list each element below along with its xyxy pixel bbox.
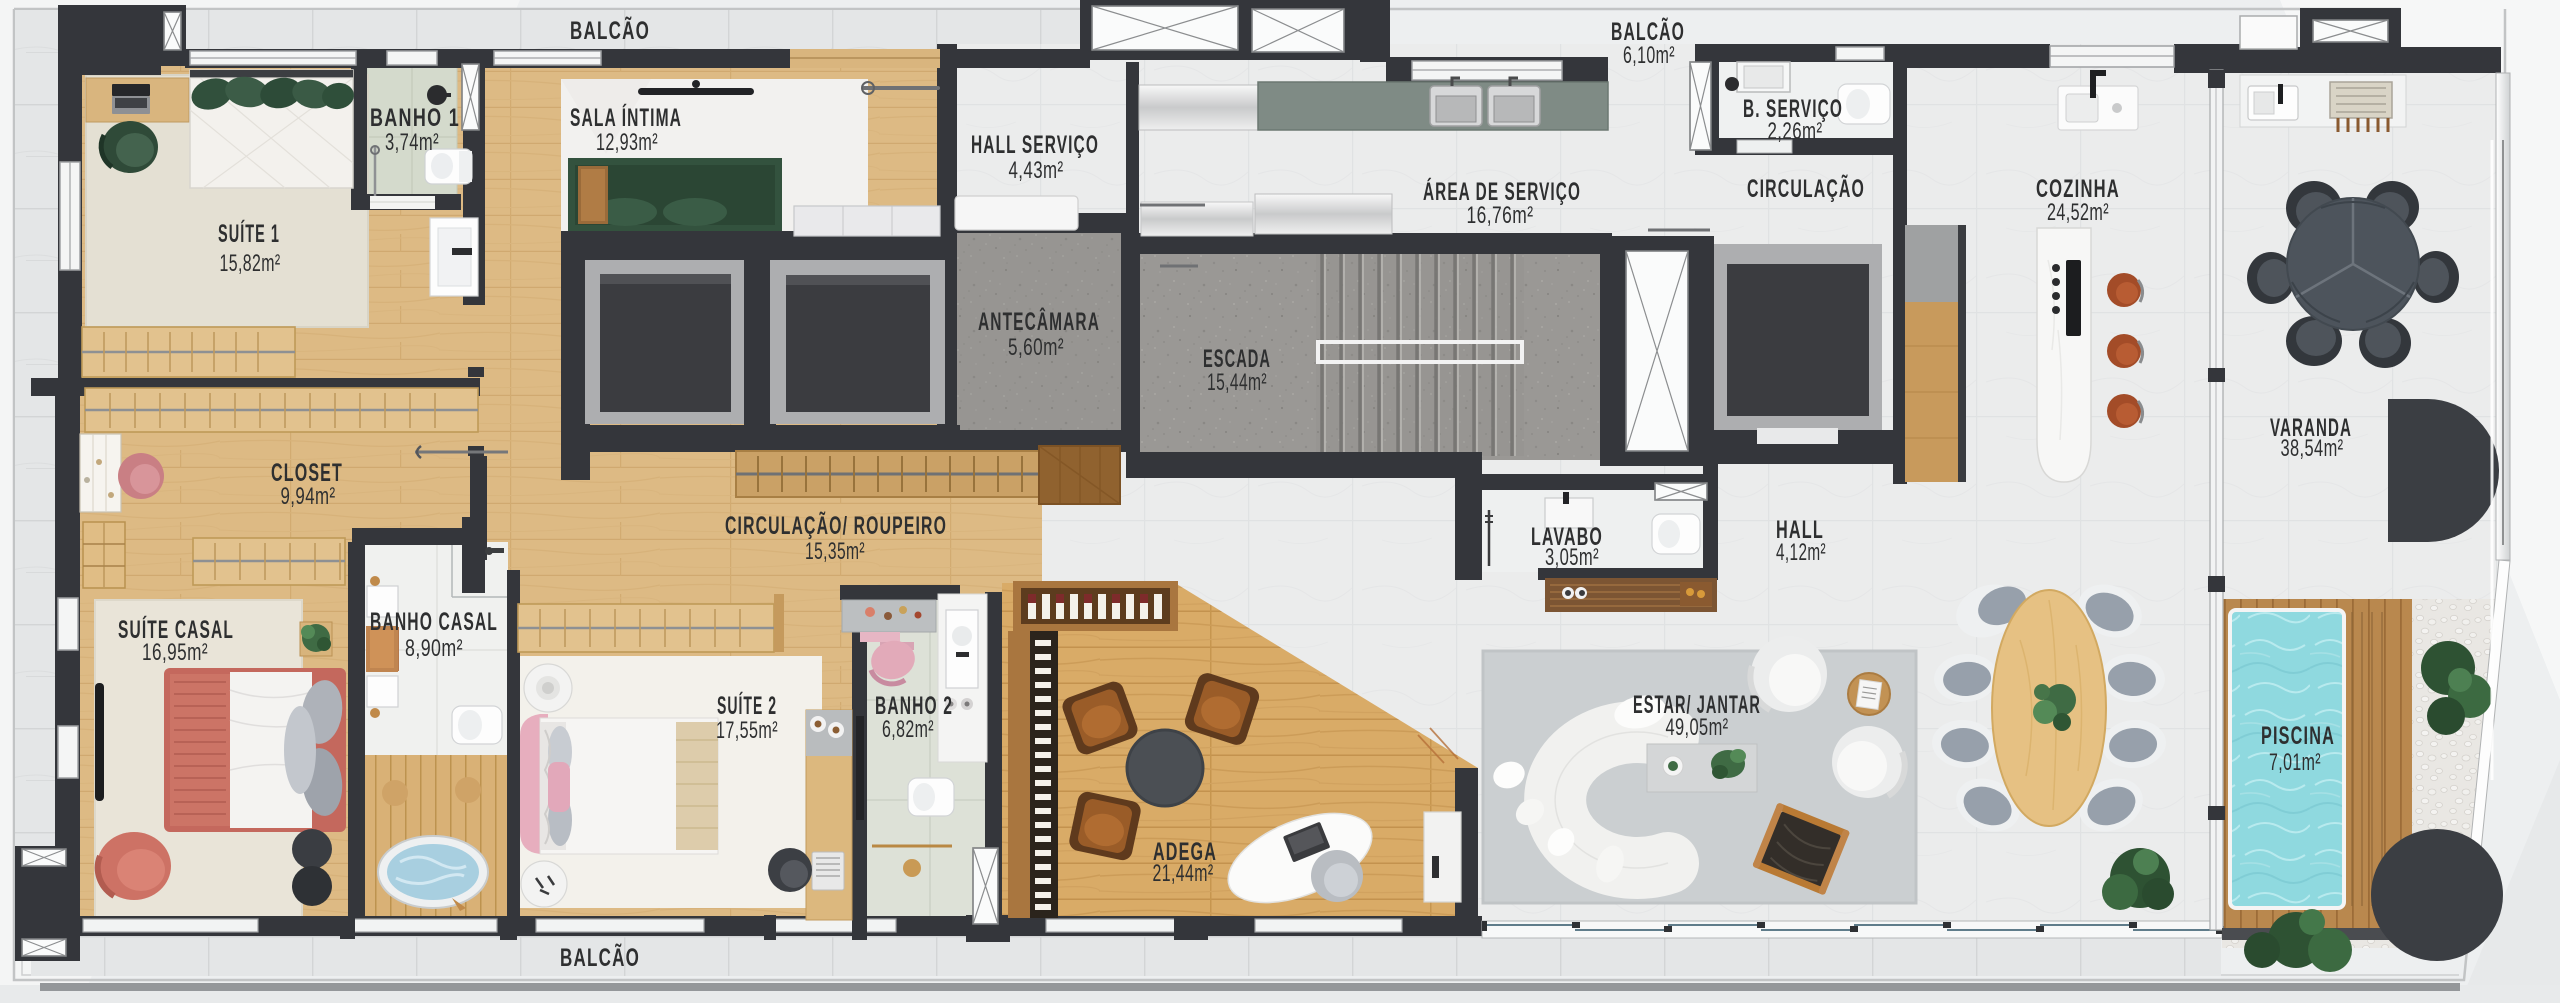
svg-text:21,44m²: 21,44m² (1153, 860, 1214, 887)
svg-text:4,43m²: 4,43m² (1009, 157, 1064, 184)
svg-text:3,74m²: 3,74m² (385, 129, 439, 156)
svg-text:8,90m²: 8,90m² (405, 635, 463, 662)
svg-text:6,10m²: 6,10m² (1623, 42, 1675, 69)
svg-text:BANHO CASAL: BANHO CASAL (370, 608, 498, 636)
svg-text:BALCÃO: BALCÃO (570, 15, 650, 45)
svg-text:17,55m²: 17,55m² (716, 717, 778, 744)
svg-text:38,54m²: 38,54m² (2281, 435, 2344, 462)
svg-text:5,60m²: 5,60m² (1008, 334, 1064, 361)
svg-text:9,94m²: 9,94m² (281, 483, 336, 510)
svg-text:CIRCULAÇÃO/ ROUPEIRO: CIRCULAÇÃO/ ROUPEIRO (725, 510, 947, 540)
svg-text:PISCINA: PISCINA (2261, 722, 2335, 750)
svg-text:7,01m²: 7,01m² (2269, 749, 2321, 776)
svg-text:49,05m²: 49,05m² (1666, 714, 1729, 741)
svg-text:ANTECÂMARA: ANTECÂMARA (978, 306, 1100, 336)
svg-text:15,82m²: 15,82m² (220, 250, 281, 277)
svg-text:BANHO 1: BANHO 1 (370, 104, 460, 132)
svg-text:CIRCULAÇÃO: CIRCULAÇÃO (1747, 173, 1865, 203)
svg-text:12,93m²: 12,93m² (596, 129, 658, 156)
svg-text:6,82m²: 6,82m² (882, 716, 934, 743)
svg-text:24,52m²: 24,52m² (2047, 199, 2109, 226)
svg-text:SALA ÍNTIMA: SALA ÍNTIMA (570, 103, 682, 132)
svg-text:16,95m²: 16,95m² (142, 639, 208, 666)
svg-text:BALCÃO: BALCÃO (560, 942, 640, 972)
svg-text:SUÍTE 2: SUÍTE 2 (717, 691, 777, 720)
svg-text:HALL SERVIÇO: HALL SERVIÇO (971, 131, 1099, 159)
svg-text:2,26m²: 2,26m² (1768, 118, 1823, 145)
svg-text:15,35m²: 15,35m² (805, 538, 865, 565)
svg-text:4,12m²: 4,12m² (1776, 539, 1826, 566)
svg-text:SUÍTE 1: SUÍTE 1 (218, 219, 280, 248)
svg-text:15,44m²: 15,44m² (1207, 369, 1267, 396)
svg-text:16,76m²: 16,76m² (1467, 202, 1534, 229)
svg-text:3,05m²: 3,05m² (1545, 544, 1599, 571)
